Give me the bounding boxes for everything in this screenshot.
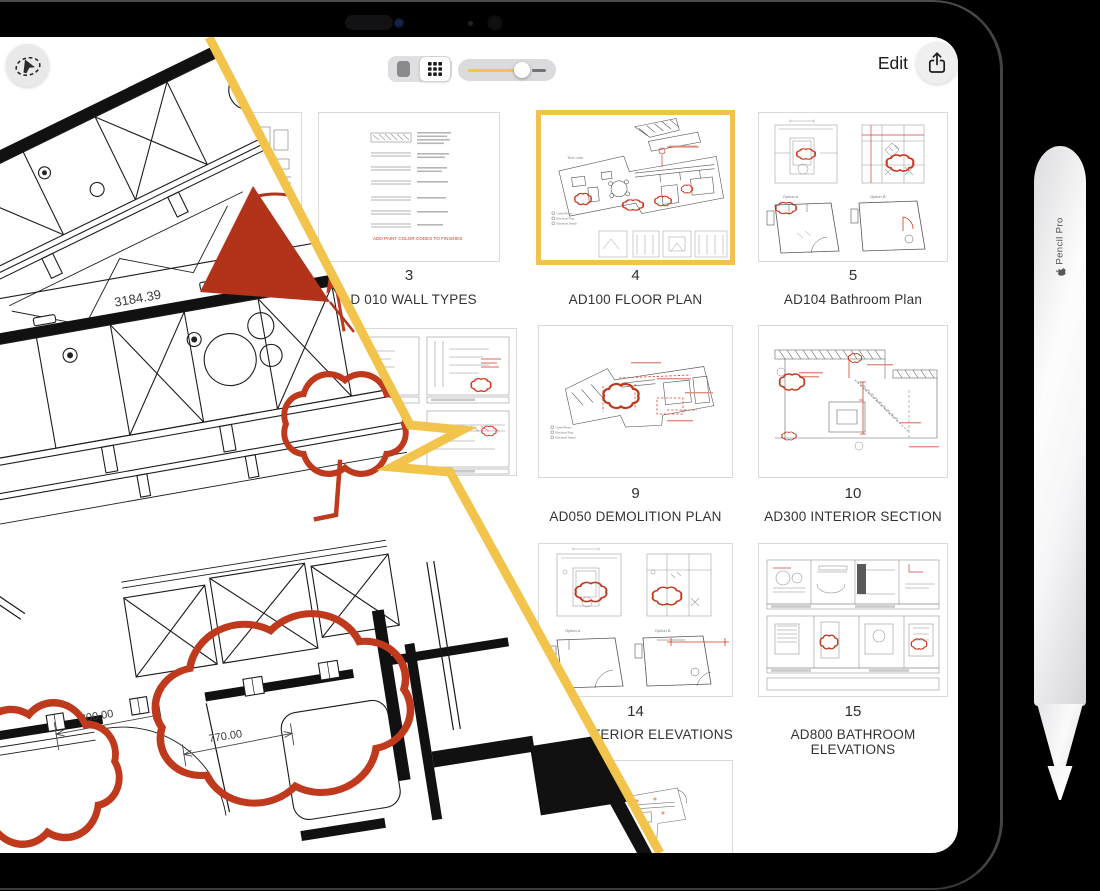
page-title: AD100 FLOOR PLAN	[538, 292, 733, 307]
page-title: AD800 BATHROOM ELEVATIONS	[758, 727, 948, 757]
pencil-brand-text: Pencil Pro	[1055, 217, 1066, 264]
pencil-tip	[1034, 766, 1086, 800]
apple-logo-icon	[1055, 267, 1065, 275]
page-thumbnail-9[interactable]: Cable/Phone Electrical Plug Electrical S…	[538, 325, 733, 478]
single-page-icon	[397, 61, 410, 77]
front-camera-icon	[394, 18, 404, 28]
page-title: AD104 Bathroom Plan	[758, 292, 948, 307]
thumbnail-preview	[539, 761, 732, 853]
lasso-arrow-icon	[13, 51, 43, 81]
slider-track	[532, 69, 546, 73]
pencil-brand: Pencil Pro	[1034, 166, 1086, 326]
page-thumbnail-10[interactable]	[758, 325, 948, 478]
camera-pill	[345, 15, 393, 30]
select-tool-button[interactable]	[6, 44, 49, 87]
red-note-text: ADD PAINT COLOR CODES TO FINISHES	[373, 236, 462, 241]
page-thumbnail-partial-2[interactable]	[120, 112, 302, 262]
page-thumbnail-partial-19[interactable]	[538, 760, 733, 853]
page-thumbnail-partial-8[interactable]	[330, 328, 517, 476]
option-b-label: Option B	[655, 628, 671, 633]
revision-cloud	[144, 600, 421, 817]
slider-fill	[468, 69, 520, 73]
grid-view-segment[interactable]	[419, 56, 451, 82]
page-title-fragment: INTERIOR ELEVATIONS	[558, 727, 753, 742]
page-number: 10	[758, 485, 948, 502]
camera-lens-icon	[487, 15, 503, 31]
thumbnail-preview: Option A Option B	[759, 113, 947, 261]
option-a-label: Option A	[783, 194, 799, 199]
page-number: 15	[758, 703, 948, 720]
page-thumbnail-4-selected[interactable]: Text note Cable/Phone Electrical Plug El…	[536, 110, 735, 265]
option-b-label: Option B	[870, 194, 886, 199]
thumbnail-preview: Option A Option B	[539, 544, 732, 696]
thumbnail-preview	[121, 113, 301, 261]
thumbnail-preview	[331, 329, 516, 475]
thumbnail-preview	[759, 326, 947, 477]
page-number: 4	[538, 267, 733, 284]
edit-button[interactable]: Edit	[856, 51, 908, 75]
legend-item: Electrical Switch	[556, 436, 577, 440]
page-thumbnail-3[interactable]: ADD PAINT COLOR CODES TO FINISHES	[318, 112, 500, 262]
page-title: AD 010 WALL TYPES	[318, 292, 500, 307]
thumbnail-preview: Cable/Phone Electrical Plug Electrical S…	[539, 326, 732, 477]
share-button[interactable]	[916, 42, 958, 84]
thumbnail-preview: ADD PAINT COLOR CODES TO FINISHES	[319, 113, 499, 261]
legend-item: Electrical Plug	[556, 431, 574, 435]
page-thumbnail-15[interactable]	[758, 543, 948, 697]
legend-item: Electrical Switch	[557, 222, 578, 226]
ipad-screen: ADD PAINT COLOR CODES TO FINISHES	[0, 37, 958, 853]
page-thumbnail-5[interactable]: Option A Option B	[758, 112, 948, 262]
thumbnail-preview: Text note Cable/Phone Electrical Plug El…	[541, 115, 730, 260]
page-thumbnail-14[interactable]: Option A Option B	[538, 543, 733, 697]
page-number: 9	[538, 485, 733, 502]
dimension-text: 770.00	[208, 728, 243, 745]
legend-item: Cable/Phone	[556, 426, 573, 430]
page-number: 14	[538, 703, 733, 720]
stage: ADD PAINT COLOR CODES TO FINISHES	[0, 0, 1100, 891]
option-a-label: Option A	[565, 628, 581, 633]
thumbnail-preview	[759, 544, 947, 696]
legend-item: Electrical Plug	[557, 217, 575, 221]
page-number: 5	[758, 267, 948, 284]
camera-sensor-dot	[468, 21, 473, 26]
view-segmented-control	[388, 56, 452, 82]
page-title-fragment: S	[458, 509, 488, 524]
plan-text-note: Text note	[567, 155, 584, 160]
dimension-text: 800.00	[79, 708, 114, 725]
apple-pencil: Pencil Pro	[1034, 146, 1086, 826]
page-view-segment[interactable]	[388, 58, 418, 80]
slider-thumb[interactable]	[514, 62, 530, 78]
pencil-cone	[1034, 704, 1086, 768]
share-icon	[924, 50, 950, 76]
dimension-text: 3184.39	[113, 287, 162, 310]
revision-cloud	[0, 694, 128, 853]
page-title: AD300 INTERIOR SECTION	[758, 509, 948, 524]
legend-item: Cable/Phone	[557, 212, 574, 216]
dimension-lines	[54, 684, 294, 786]
thumbnail-zoom-slider[interactable]	[458, 59, 556, 81]
grid-icon	[427, 61, 443, 77]
page-title: AD050 DEMOLITION PLAN	[538, 509, 733, 524]
page-number: 3	[318, 267, 500, 284]
